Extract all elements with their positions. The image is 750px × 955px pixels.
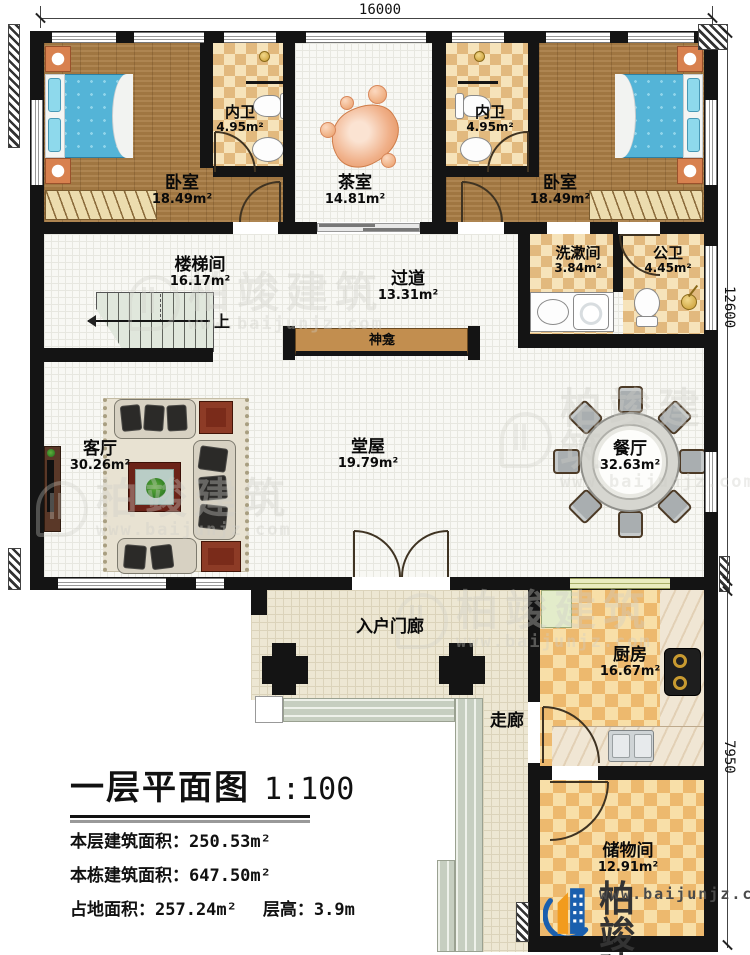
wall-segment bbox=[468, 326, 480, 360]
wall-segment bbox=[30, 348, 213, 362]
room-label-living-room: 客厅30.26m² bbox=[70, 440, 130, 474]
cushion-icon bbox=[143, 404, 165, 431]
cushion-icon bbox=[197, 445, 228, 473]
floor-plan: 柏竣建筑www.baijunjz.com 柏竣建筑www.baijunjz.co… bbox=[0, 0, 750, 955]
room-label-public-bath: 公卫4.45m² bbox=[644, 245, 691, 275]
cushion-icon bbox=[198, 475, 228, 501]
dimension-right-lower-value: 7950 bbox=[721, 740, 737, 774]
end-table-icon bbox=[201, 541, 241, 572]
cushion-icon bbox=[166, 404, 187, 431]
sink-icon bbox=[460, 137, 492, 162]
wall-segment bbox=[613, 234, 623, 292]
dimension-line-top bbox=[40, 18, 712, 19]
wall-segment bbox=[278, 222, 317, 234]
plant-icon bbox=[47, 449, 55, 457]
hatch-mark bbox=[8, 24, 20, 148]
room-name: 入户门廊 bbox=[356, 618, 424, 637]
tea-stool-icon bbox=[368, 85, 387, 104]
building-area-value: 647.50m² bbox=[189, 866, 271, 886]
end-table-icon bbox=[199, 401, 233, 434]
plan-scale: 1:100 bbox=[264, 772, 354, 807]
room-area: 3.84m² bbox=[554, 262, 601, 275]
wall-segment bbox=[528, 43, 539, 177]
side-steps-lower bbox=[437, 860, 455, 952]
cushion-icon bbox=[123, 544, 147, 570]
story-height-value: 3.9m bbox=[314, 900, 355, 920]
toilet-tank bbox=[455, 93, 464, 119]
plan-title: 一层平面图 bbox=[70, 768, 250, 808]
porch-column bbox=[272, 643, 296, 695]
kitchen-window-box bbox=[541, 590, 572, 628]
window bbox=[705, 100, 717, 185]
room-area: 4.45m² bbox=[644, 262, 691, 275]
land-area-value: 257.24m² bbox=[155, 900, 237, 920]
room-name: 茶室 bbox=[325, 174, 385, 193]
room-area: 32.63m² bbox=[600, 459, 660, 474]
room-name: 楼梯间 bbox=[170, 256, 230, 275]
sliding-door-panel bbox=[319, 224, 375, 227]
hatch-mark bbox=[8, 548, 21, 590]
pillow-icon bbox=[48, 118, 61, 152]
stair-rail bbox=[160, 294, 161, 322]
brand-logo: 柏竣建筑 www.baijunjz.com bbox=[543, 882, 599, 936]
nightstand-icon bbox=[45, 158, 71, 184]
floor-area-value: 250.53m² bbox=[189, 832, 271, 852]
sink-basin bbox=[612, 734, 630, 758]
room-label-kitchen: 厨房16.67m² bbox=[600, 646, 660, 680]
wardrobe-icon-left bbox=[45, 190, 157, 220]
room-name: 餐厅 bbox=[600, 440, 660, 459]
wall-segment bbox=[518, 334, 718, 348]
porch-landing bbox=[255, 696, 283, 723]
wall-segment bbox=[283, 43, 295, 222]
room-area: 13.31m² bbox=[378, 289, 438, 304]
tv-icon bbox=[47, 460, 54, 512]
window bbox=[31, 100, 43, 185]
room-area: 16.67m² bbox=[600, 665, 660, 680]
room-label-washroom: 洗漱间3.84m² bbox=[554, 245, 601, 275]
room-area: 4.95m² bbox=[216, 121, 263, 134]
wall-segment bbox=[590, 222, 618, 234]
room-name: 厨房 bbox=[600, 646, 660, 665]
wall-segment bbox=[283, 326, 295, 360]
room-area: 18.49m² bbox=[530, 193, 590, 208]
pillow-icon bbox=[48, 78, 61, 112]
toilet-icon bbox=[634, 288, 660, 318]
room-name: 卧室 bbox=[530, 174, 590, 193]
stairs-up-label: 上 bbox=[214, 308, 230, 332]
wall-segment bbox=[420, 222, 458, 234]
stair-direction-line bbox=[88, 320, 210, 322]
wall-segment bbox=[660, 222, 718, 234]
window bbox=[705, 452, 717, 512]
wall-segment bbox=[598, 766, 704, 780]
wall-segment bbox=[30, 222, 233, 234]
room-name: 储物间 bbox=[598, 842, 658, 861]
wall-segment bbox=[540, 766, 552, 780]
room-name: 客厅 bbox=[70, 440, 130, 459]
hatch-mark bbox=[516, 902, 529, 942]
shower-partition bbox=[246, 81, 286, 84]
room-label-corridor: 走廊 bbox=[490, 712, 524, 731]
room-label-bedroom-right: 卧室18.49m² bbox=[530, 174, 590, 208]
room-label-ensuite-left: 内卫4.95m² bbox=[216, 104, 263, 134]
window bbox=[58, 578, 166, 589]
room-name: 堂屋 bbox=[338, 438, 398, 457]
room-label-dining-room: 餐厅32.63m² bbox=[600, 440, 660, 474]
wall-segment bbox=[432, 43, 446, 222]
chair-icon bbox=[618, 386, 643, 413]
wall-segment bbox=[528, 590, 540, 702]
room-name: 走廊 bbox=[490, 712, 524, 731]
sink-icon bbox=[252, 137, 284, 162]
stair-arrow-icon bbox=[81, 315, 96, 327]
room-area: 14.81m² bbox=[325, 193, 385, 208]
room-label-storage: 储物间12.91m² bbox=[598, 842, 658, 876]
room-name: 卧室 bbox=[152, 174, 212, 193]
porch-column bbox=[449, 643, 473, 695]
wall-segment bbox=[518, 234, 530, 334]
room-name: 过道 bbox=[378, 270, 438, 289]
floor-area-label: 本层建筑面积： bbox=[70, 832, 189, 852]
cushion-icon bbox=[150, 544, 175, 571]
chair-icon bbox=[618, 511, 643, 538]
dimension-right-upper-value: 12600 bbox=[721, 286, 737, 328]
room-area: 4.95m² bbox=[466, 121, 513, 134]
tea-stool-icon bbox=[320, 122, 336, 138]
brand-url: www.baijunjz.com bbox=[599, 885, 750, 903]
window bbox=[705, 246, 717, 330]
room-name: 内卫 bbox=[466, 104, 513, 121]
title-rule bbox=[70, 815, 310, 818]
room-area: 19.79m² bbox=[338, 457, 398, 472]
cushion-icon bbox=[120, 404, 143, 432]
room-area: 12.91m² bbox=[598, 861, 658, 876]
wall-segment bbox=[213, 166, 283, 177]
room-area: 18.49m² bbox=[152, 193, 212, 208]
chair-icon bbox=[679, 449, 706, 474]
window bbox=[546, 32, 610, 43]
room-area: 16.17m² bbox=[170, 275, 230, 290]
porch-steps bbox=[283, 698, 455, 722]
chair-icon bbox=[553, 449, 580, 474]
washing-machine-icon bbox=[573, 294, 609, 330]
room-label-tea-room: 茶室14.81m² bbox=[325, 174, 385, 208]
bedroom-right-entry-floor bbox=[446, 177, 539, 222]
kitchen-pass-window bbox=[570, 578, 670, 589]
pillow-icon bbox=[687, 118, 700, 152]
story-height-label: 层高： bbox=[263, 900, 314, 920]
shower-head-icon bbox=[474, 51, 485, 62]
sink-basin bbox=[634, 734, 652, 758]
nightstand-icon bbox=[677, 158, 703, 184]
room-label-hallway: 过道13.31m² bbox=[378, 270, 438, 304]
burner-icon bbox=[673, 654, 687, 668]
floor-area-line: 本层建筑面积：250.53m² bbox=[70, 827, 370, 852]
toilet-tank bbox=[636, 316, 658, 327]
window bbox=[196, 578, 224, 589]
sink-icon bbox=[537, 299, 569, 325]
tea-stool-icon bbox=[340, 96, 354, 110]
wall-segment bbox=[200, 43, 213, 168]
title-block: 一层平面图1:100 本层建筑面积：250.53m² 本栋建筑面积：647.50… bbox=[70, 760, 370, 920]
window bbox=[628, 32, 694, 43]
room-label-bedroom-left: 卧室18.49m² bbox=[152, 174, 212, 208]
corridor-floor bbox=[483, 590, 528, 952]
land-area-label: 占地面积： bbox=[70, 900, 155, 920]
window bbox=[306, 32, 426, 43]
room-area: 30.26m² bbox=[70, 459, 130, 474]
room-name: 洗漱间 bbox=[554, 245, 601, 262]
room-name: 内卫 bbox=[216, 104, 263, 121]
wardrobe-icon-right bbox=[589, 190, 703, 220]
room-name: 公卫 bbox=[644, 245, 691, 262]
burner-icon bbox=[673, 676, 687, 690]
room-label-stair-hall: 楼梯间16.17m² bbox=[170, 256, 230, 290]
nightstand-icon bbox=[45, 46, 71, 72]
pillow-icon bbox=[687, 78, 700, 112]
sliding-door-panel bbox=[363, 228, 419, 231]
shower-head-icon bbox=[259, 51, 270, 62]
window bbox=[134, 32, 204, 43]
cushion-icon bbox=[198, 504, 228, 531]
side-steps bbox=[455, 698, 483, 952]
room-label-main-hall: 堂屋19.79m² bbox=[338, 438, 398, 472]
shower-partition bbox=[458, 81, 498, 84]
room-label-ensuite-right: 内卫4.95m² bbox=[466, 104, 513, 134]
room-name: 神龛 bbox=[369, 334, 395, 349]
dimension-top-value: 16000 bbox=[340, 2, 420, 18]
window bbox=[52, 32, 116, 43]
land-area-line: 占地面积：257.24m²层高：3.9m bbox=[70, 895, 370, 920]
brand-logo-icon bbox=[543, 882, 593, 936]
wall-segment bbox=[251, 577, 267, 615]
window bbox=[224, 32, 276, 43]
building-area-line: 本栋建筑面积：647.50m² bbox=[70, 861, 370, 886]
building-area-label: 本栋建筑面积： bbox=[70, 866, 189, 886]
tea-stool-icon bbox=[381, 153, 396, 168]
wall-segment bbox=[504, 222, 547, 234]
room-label-shrine: 神龛 bbox=[369, 334, 395, 349]
window bbox=[452, 32, 504, 43]
wall-segment bbox=[446, 166, 528, 177]
wall-segment bbox=[528, 763, 540, 938]
room-label-entry-porch: 入户门廊 bbox=[356, 618, 424, 637]
plant-icon bbox=[146, 478, 166, 498]
